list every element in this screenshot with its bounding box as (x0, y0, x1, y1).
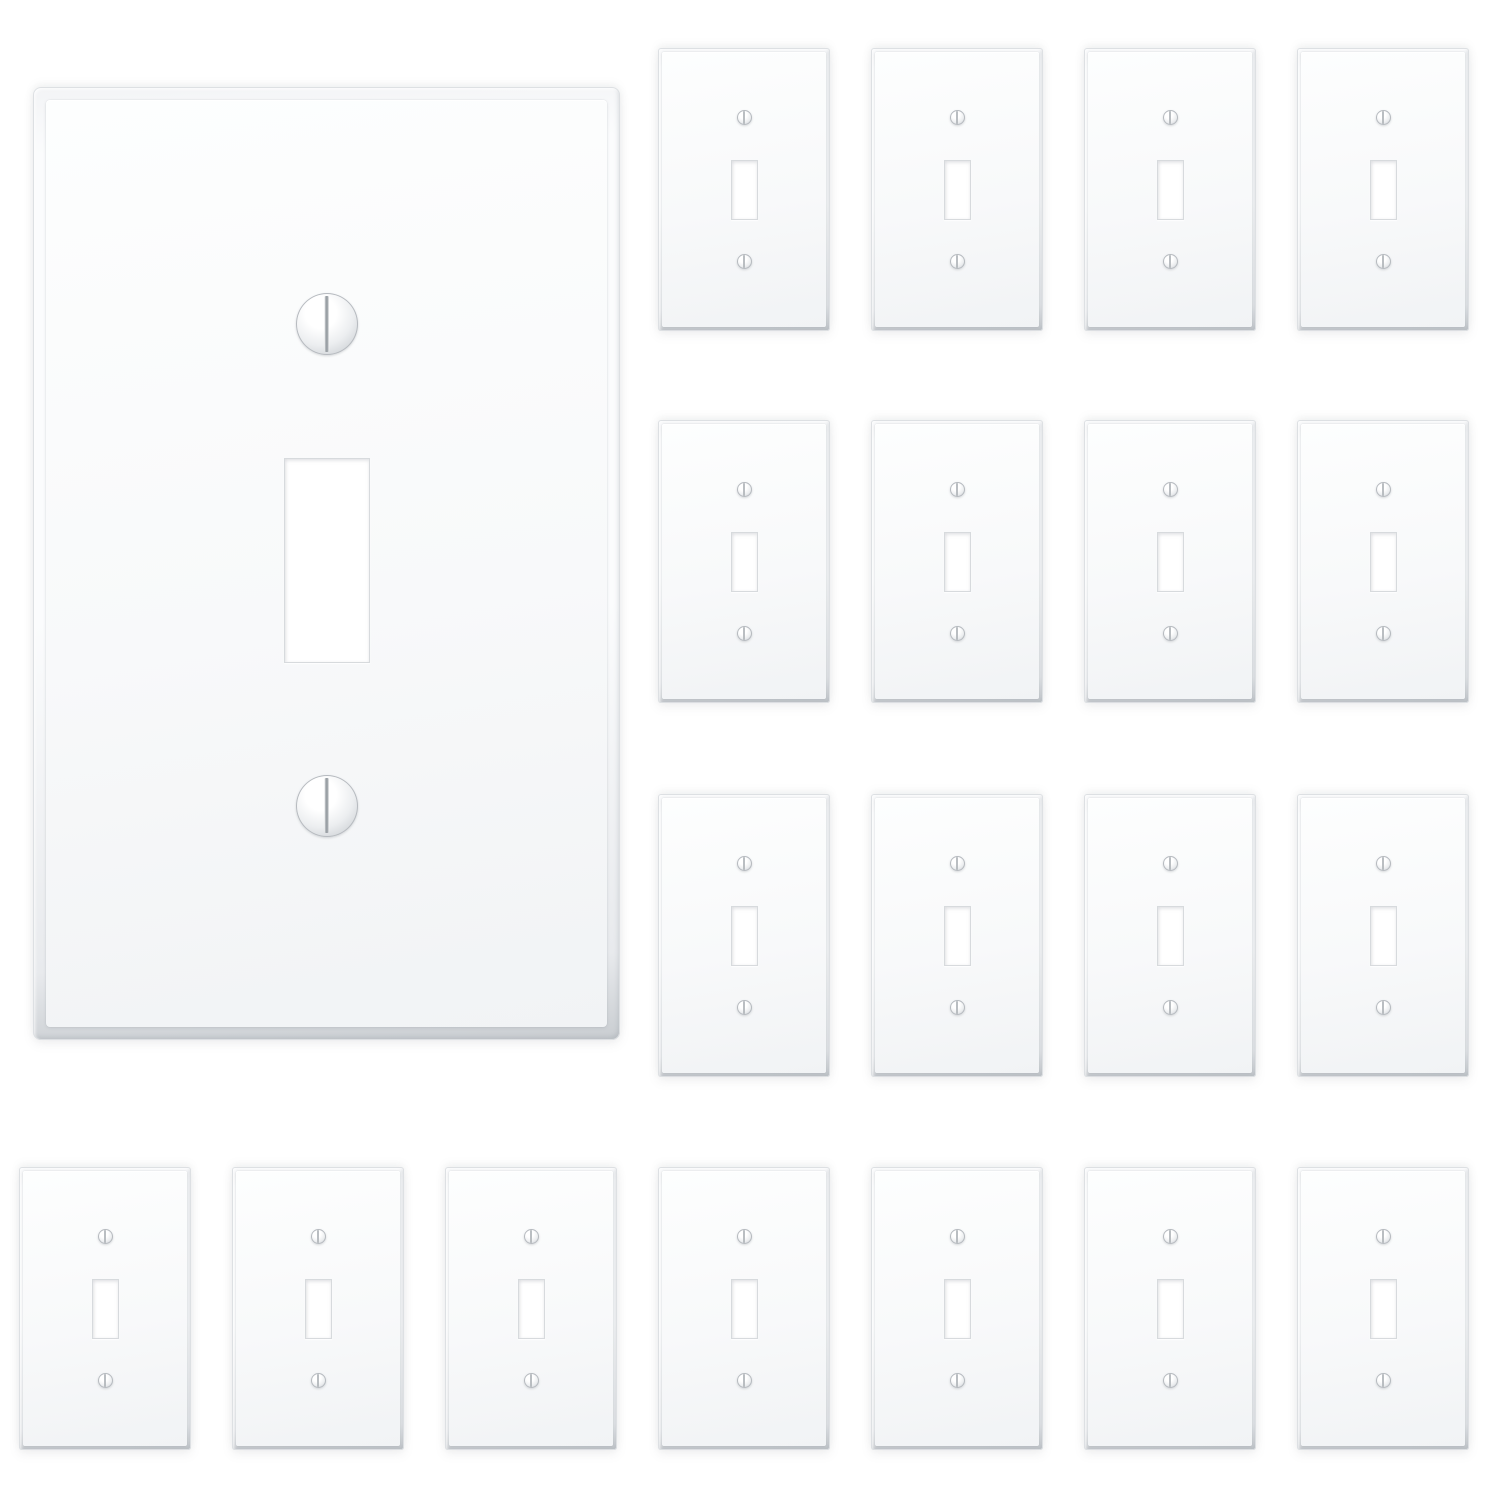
bottom-screw (1163, 254, 1178, 269)
top-screw (1163, 1229, 1178, 1244)
top-screw (1376, 110, 1391, 125)
bottom-screw (1163, 1373, 1178, 1388)
toggle-switch-cutout (1370, 906, 1397, 966)
bottom-screw (1163, 1000, 1178, 1015)
top-screw (737, 482, 752, 497)
top-screw (524, 1229, 539, 1244)
top-screw (737, 1229, 752, 1244)
wall-plate (1297, 1167, 1469, 1450)
bottom-screw (1376, 1000, 1391, 1015)
bottom-screw (950, 254, 965, 269)
bottom-screw (1376, 254, 1391, 269)
top-screw (1163, 482, 1178, 497)
toggle-switch-cutout (284, 458, 370, 663)
wall-plate (658, 48, 830, 331)
toggle-switch-cutout (944, 906, 971, 966)
toggle-switch-cutout (1370, 1279, 1397, 1339)
toggle-switch-cutout (731, 160, 758, 220)
toggle-switch-cutout (944, 532, 971, 592)
wall-plate (19, 1167, 191, 1450)
toggle-switch-cutout (1370, 160, 1397, 220)
top-screw (950, 110, 965, 125)
toggle-switch-cutout (944, 160, 971, 220)
toggle-switch-cutout (518, 1279, 545, 1339)
bottom-screw (737, 254, 752, 269)
top-screw (950, 856, 965, 871)
bottom-screw (737, 1000, 752, 1015)
toggle-switch-cutout (92, 1279, 119, 1339)
toggle-switch-cutout (731, 906, 758, 966)
top-screw (1376, 482, 1391, 497)
product-image-canvas (0, 0, 1500, 1500)
wall-plate (871, 794, 1043, 1077)
toggle-switch-cutout (1157, 160, 1184, 220)
wall-plate (871, 1167, 1043, 1450)
bottom-screw (950, 1000, 965, 1015)
bottom-screw (98, 1373, 113, 1388)
wall-plate (1297, 420, 1469, 703)
top-screw (737, 110, 752, 125)
toggle-switch-cutout (944, 1279, 971, 1339)
bottom-screw (1376, 626, 1391, 641)
wall-plate (658, 1167, 830, 1450)
toggle-switch-cutout (305, 1279, 332, 1339)
top-screw (296, 293, 358, 355)
bottom-screw (950, 626, 965, 641)
wall-plate (1084, 420, 1256, 703)
bottom-screw (524, 1373, 539, 1388)
wall-plate (1084, 48, 1256, 331)
bottom-screw (1376, 1373, 1391, 1388)
top-screw (98, 1229, 113, 1244)
wall-plate (1084, 1167, 1256, 1450)
toggle-switch-cutout (731, 1279, 758, 1339)
bottom-screw (296, 775, 358, 837)
top-screw (1376, 1229, 1391, 1244)
wall-plate (1084, 794, 1256, 1077)
wall-plate (33, 87, 620, 1040)
top-screw (950, 1229, 965, 1244)
bottom-screw (311, 1373, 326, 1388)
bottom-screw (1163, 626, 1178, 641)
wall-plate (658, 794, 830, 1077)
toggle-switch-cutout (1157, 1279, 1184, 1339)
top-screw (1376, 856, 1391, 871)
top-screw (1163, 856, 1178, 871)
top-screw (1163, 110, 1178, 125)
wall-plate (232, 1167, 404, 1450)
top-screw (950, 482, 965, 497)
toggle-switch-cutout (1157, 532, 1184, 592)
wall-plate (1297, 48, 1469, 331)
wall-plate (658, 420, 830, 703)
wall-plate (871, 420, 1043, 703)
toggle-switch-cutout (1370, 532, 1397, 592)
top-screw (737, 856, 752, 871)
wall-plate (445, 1167, 617, 1450)
toggle-switch-cutout (1157, 906, 1184, 966)
wall-plate (871, 48, 1043, 331)
top-screw (311, 1229, 326, 1244)
bottom-screw (950, 1373, 965, 1388)
bottom-screw (737, 1373, 752, 1388)
toggle-switch-cutout (731, 532, 758, 592)
wall-plate (1297, 794, 1469, 1077)
bottom-screw (737, 626, 752, 641)
